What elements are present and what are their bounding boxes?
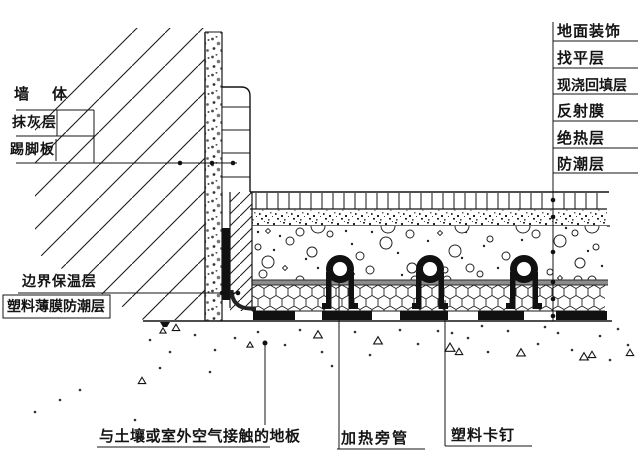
- label-plastic-clip: 塑料卡钉: [451, 427, 515, 444]
- label-insulation-layer: 绝热层: [557, 130, 605, 147]
- plaster-layer-strip: [205, 32, 222, 321]
- skirting-board: [222, 87, 250, 192]
- label-edge-insulation: 边界保温层: [22, 273, 97, 290]
- label-plastic-film-barrier: 塑料薄膜防潮层: [7, 298, 105, 315]
- construction-detail-diagram: 墙 体 抹灰层 踢脚板 边界保温层 塑料薄膜防潮层 地面装饰 找平层 现浇回填层…: [0, 0, 640, 473]
- drawing-linework: [0, 0, 640, 473]
- label-reflective-film: 反射膜: [557, 103, 605, 120]
- label-ground-contact-floor: 与土壤或室外空气接触的地板: [99, 428, 301, 445]
- soil-texture: [34, 324, 634, 421]
- ground-line: [143, 321, 612, 327]
- label-floor-decoration: 地面装饰: [557, 23, 621, 40]
- label-wall: 墙 体: [14, 86, 71, 103]
- label-backfill-layer: 现浇回填层: [557, 77, 627, 94]
- leveling-layer: [252, 209, 610, 226]
- label-plaster: 抹灰层: [12, 114, 57, 131]
- label-leveling-layer: 找平层: [557, 50, 605, 67]
- label-skirting: 踢脚板: [10, 141, 55, 158]
- label-heating-pipe: 加热旁管: [341, 430, 409, 447]
- label-moisture-barrier: 防潮层: [557, 156, 605, 173]
